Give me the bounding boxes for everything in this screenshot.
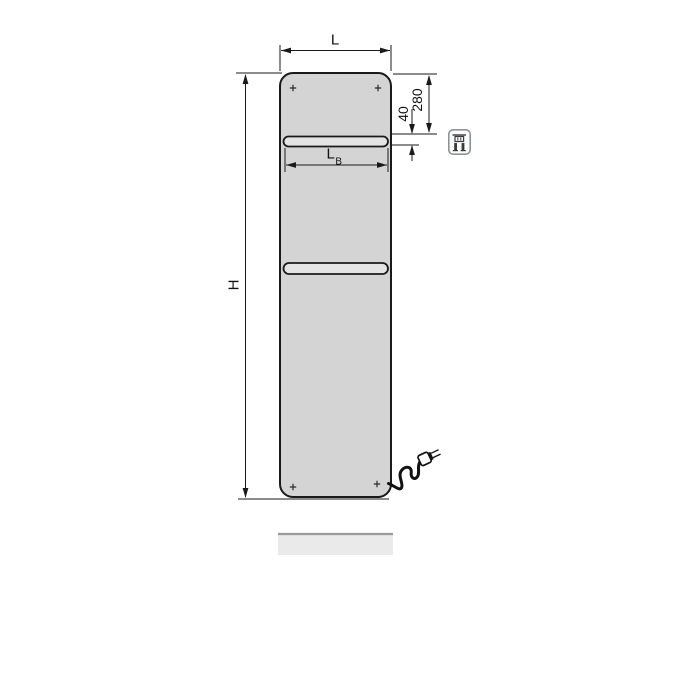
- floor-strip: [278, 533, 393, 555]
- power-cord: [389, 463, 420, 489]
- towel-slot-bottom: [284, 263, 389, 274]
- dim-label-width: L: [331, 33, 339, 48]
- electric-plug-icon: [449, 130, 470, 154]
- towel-slot-top: [284, 137, 389, 147]
- dim-label-slot-width: LB: [326, 147, 341, 166]
- drawing-svg: [0, 0, 700, 700]
- dim-label-slot-width-main: L: [326, 146, 334, 163]
- radiator-dimension-drawing: L H 280 40 LB: [0, 0, 700, 700]
- dim-width-L: [280, 45, 391, 71]
- dim-label-40: 40: [396, 106, 410, 122]
- power-plug-icon: [417, 447, 442, 466]
- dim-label-280: 280: [410, 88, 424, 111]
- dim-label-height: H: [227, 280, 242, 291]
- dim-label-slot-width-sub: B: [335, 157, 342, 168]
